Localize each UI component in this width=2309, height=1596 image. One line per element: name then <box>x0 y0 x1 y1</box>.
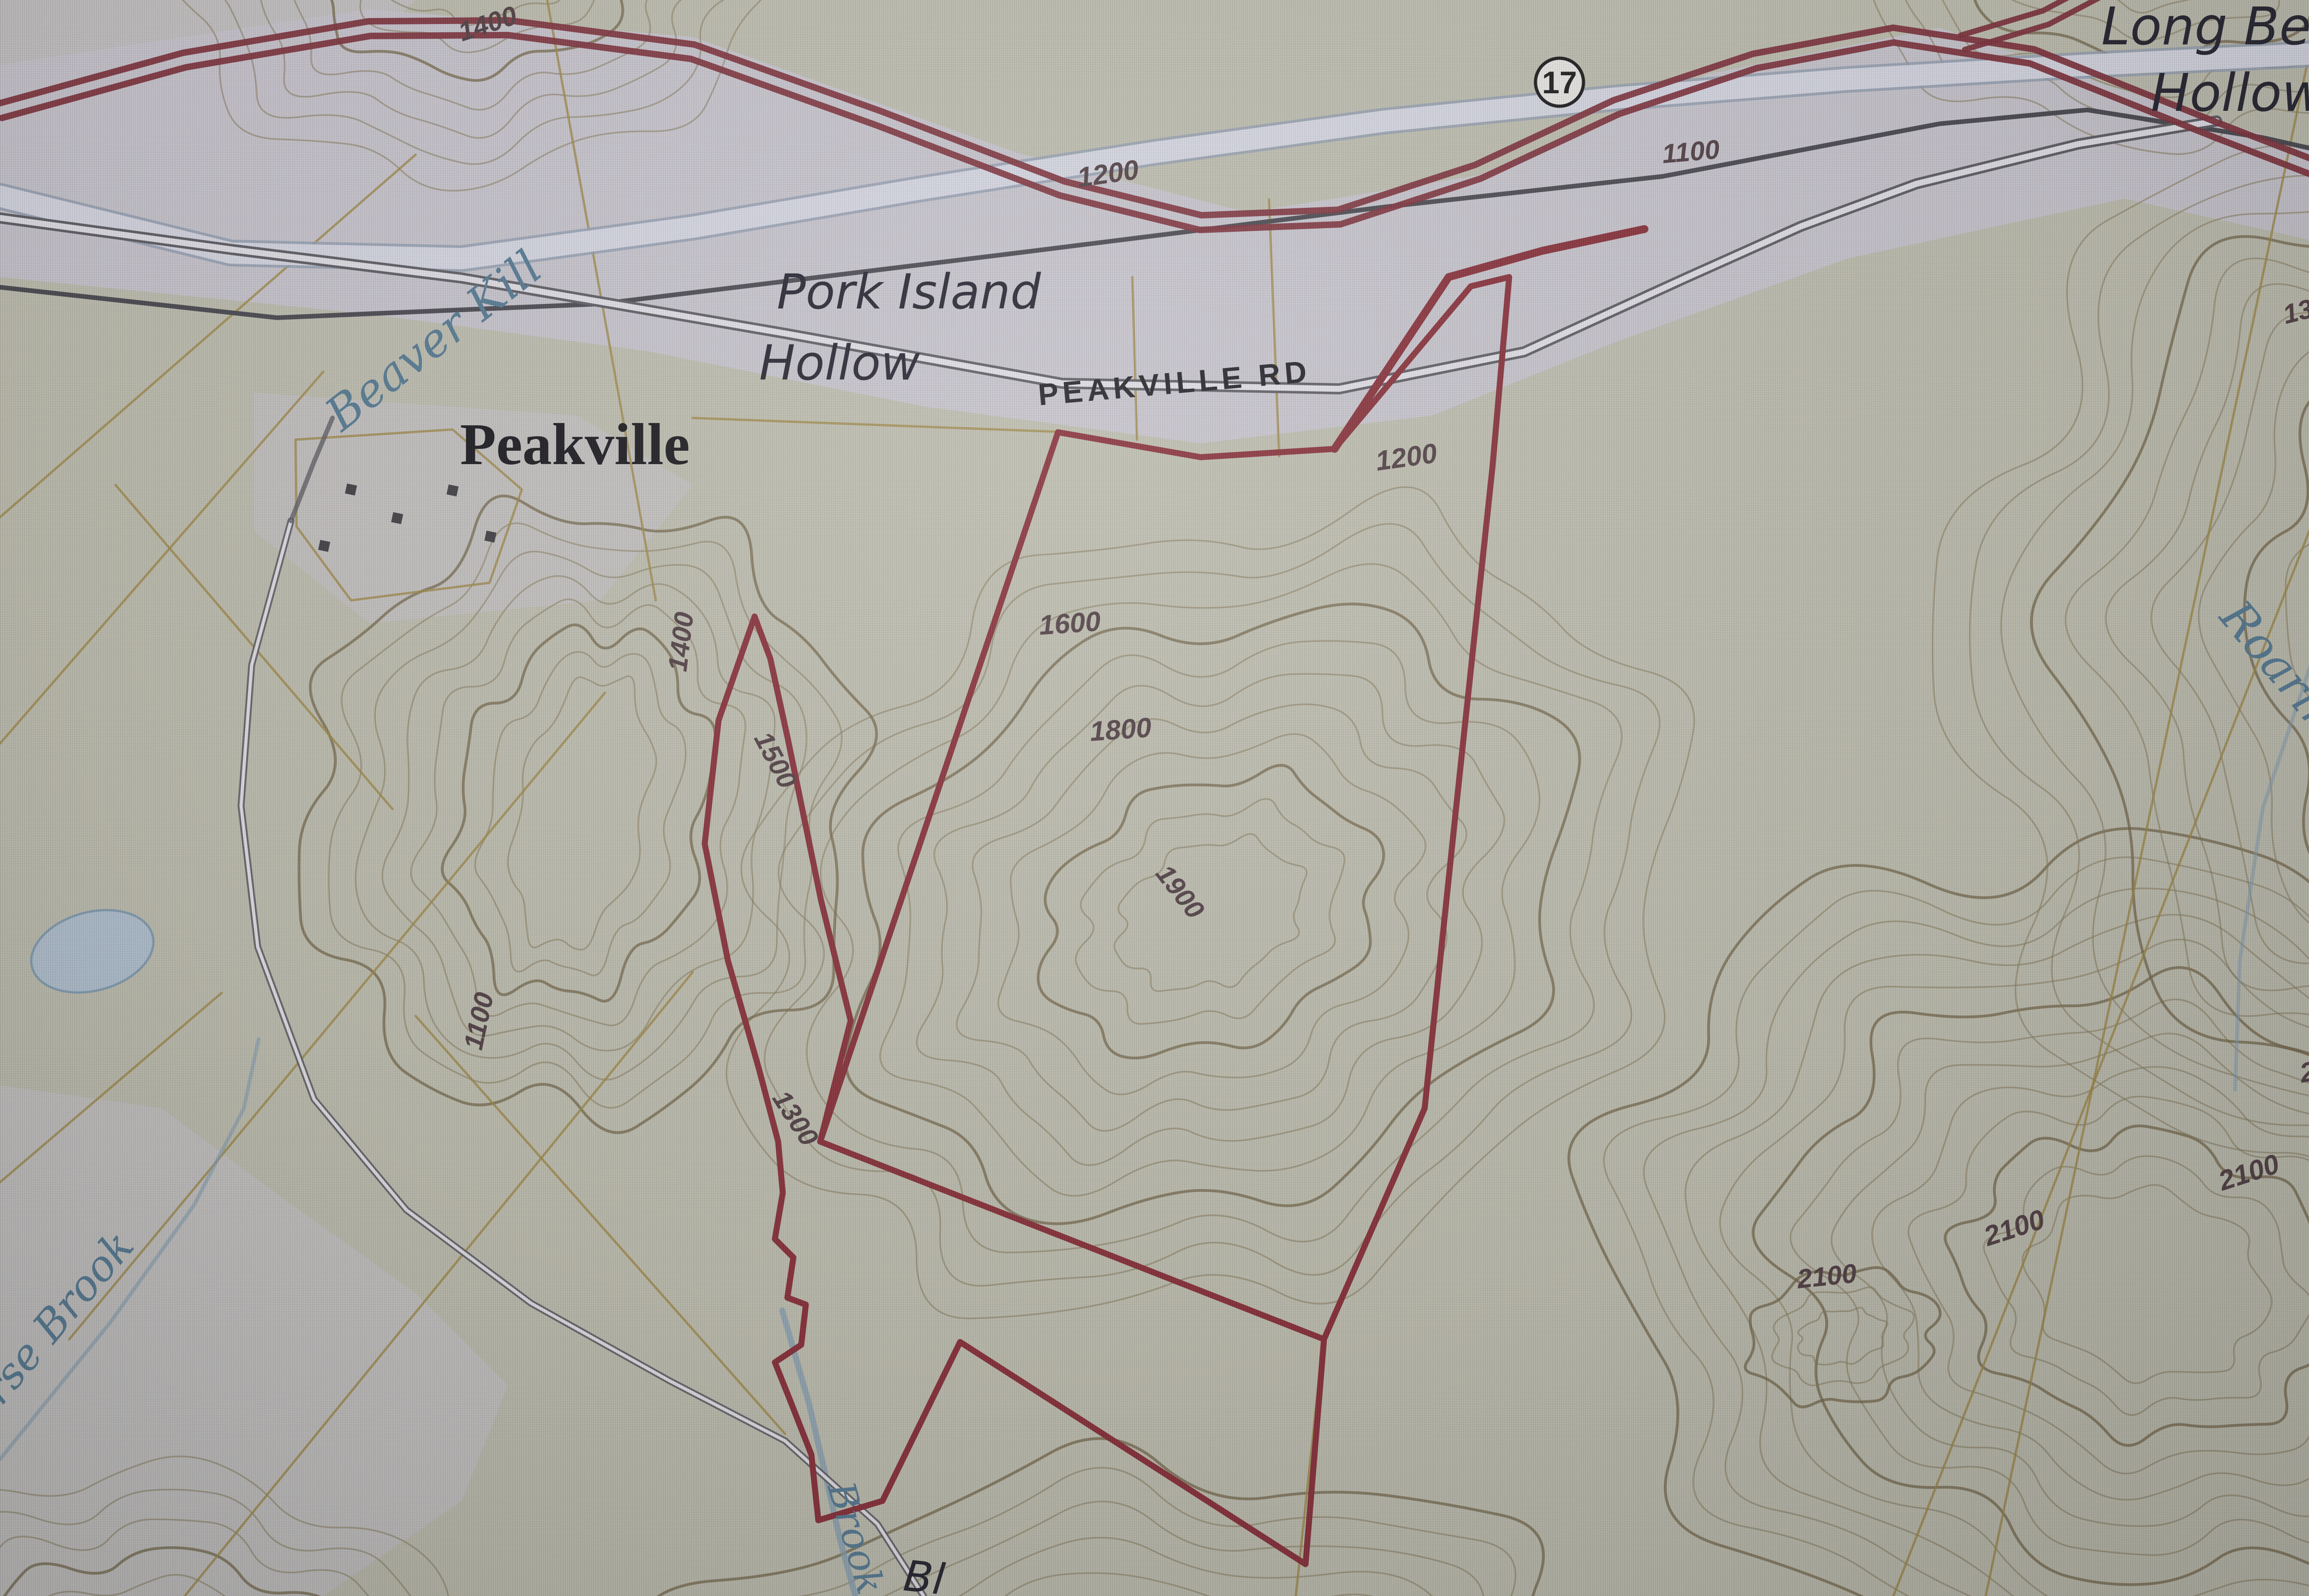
label-contour-1100-top: 1100 <box>1661 134 1721 169</box>
label-contour-1800: 1800 <box>1089 712 1153 747</box>
label-contour-1600: 1600 <box>1038 605 1102 641</box>
route-17-shield: 17 <box>1535 58 1584 106</box>
label-pork-island-hollow-2: Hollow <box>759 335 920 391</box>
topo-map: Long BeachHollowPork IslandHollowPeakvil… <box>0 0 2309 1596</box>
label-pork-island-hollow-1: Pork Island <box>777 264 1041 320</box>
terrain-layer <box>0 0 2309 1596</box>
label-contour-2100-c: 2100 <box>1795 1258 1858 1294</box>
label-bl-partial: Bl <box>901 1551 948 1596</box>
route-17-number: 17 <box>1542 65 1577 100</box>
map-photo: Long BeachHollowPork IslandHollowPeakvil… <box>0 0 2309 1596</box>
label-peakville: Peakville <box>460 411 690 477</box>
label-long-beach-hollow-2: Hollow <box>2151 63 2309 123</box>
label-long-beach-hollow-1: Long Beach <box>2101 0 2309 57</box>
